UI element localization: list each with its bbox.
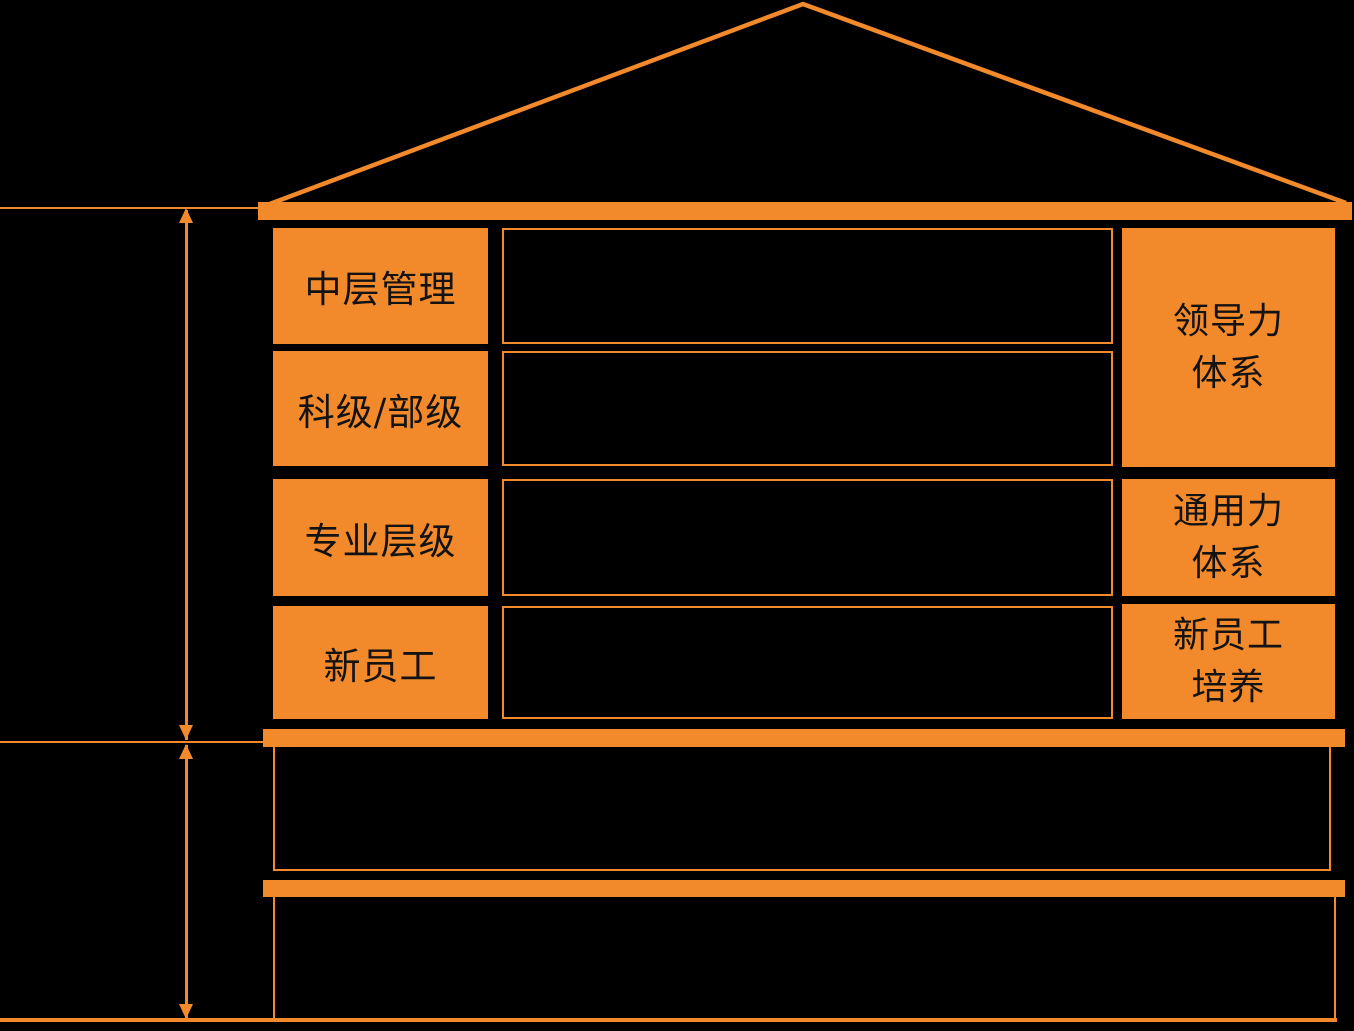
system-box-leadership: 领导力 体系 — [1122, 228, 1335, 467]
level-label: 专业层级 — [305, 511, 457, 565]
system-label-line2: 体系 — [1191, 538, 1265, 589]
ground-line — [0, 1018, 1337, 1022]
system-label-line1: 领导力 — [1173, 296, 1284, 347]
dimension-line-upper — [185, 210, 188, 740]
foundation-box-2 — [273, 897, 1336, 1019]
system-box-general-competency: 通用力 体系 — [1122, 479, 1335, 596]
content-box-row-4 — [502, 606, 1113, 719]
extension-line-middle — [0, 741, 263, 743]
arrow-down-bottom-icon — [179, 1004, 193, 1019]
level-label: 科级/部级 — [298, 382, 463, 436]
system-label-line2: 体系 — [1191, 348, 1265, 399]
arrow-down-middle-icon — [179, 725, 193, 740]
floor-bar-2 — [263, 880, 1345, 897]
dimension-line-lower — [185, 745, 188, 1018]
content-box-row-2 — [502, 351, 1113, 466]
ceiling-bar — [258, 202, 1352, 220]
extension-line-top — [0, 207, 258, 209]
content-box-row-3 — [502, 479, 1113, 596]
level-box-middle-management: 中层管理 — [273, 228, 488, 344]
level-label: 新员工 — [324, 636, 438, 690]
system-box-new-employee-training: 新员工 培养 — [1122, 604, 1335, 719]
system-label-line1: 新员工 — [1173, 610, 1284, 661]
arrow-up-middle-icon — [179, 744, 193, 759]
roof-outline — [0, 0, 1354, 230]
level-box-new-employee: 新员工 — [273, 606, 488, 719]
level-label: 中层管理 — [305, 259, 457, 313]
competency-house-diagram: 中层管理 科级/部级 专业层级 新员工 领导力 体系 通用力 体系 新员工 培养 — [0, 0, 1354, 1031]
system-label-line2: 培养 — [1191, 662, 1265, 713]
level-box-professional: 专业层级 — [273, 479, 488, 596]
floor-bar-1 — [263, 729, 1345, 747]
foundation-box-1 — [273, 747, 1331, 871]
system-label-line1: 通用力 — [1173, 486, 1284, 537]
content-box-row-1 — [502, 228, 1113, 344]
level-box-section-department: 科级/部级 — [273, 351, 488, 466]
arrow-up-top-icon — [179, 208, 193, 223]
